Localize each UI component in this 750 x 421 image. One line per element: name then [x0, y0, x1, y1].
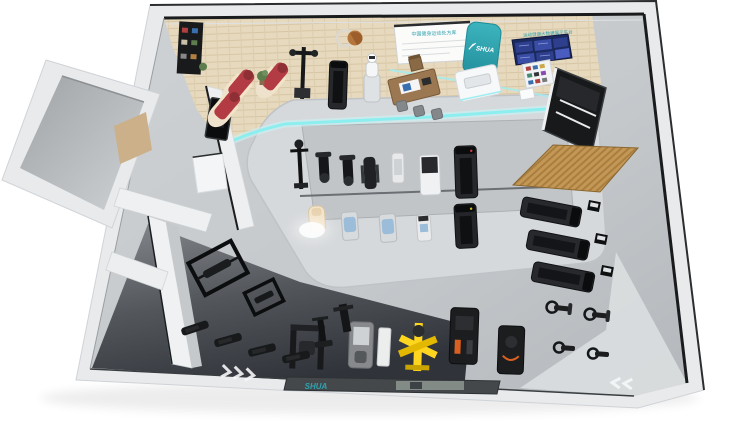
stool: [413, 105, 425, 117]
panel-board: [377, 328, 391, 367]
press-machine: [419, 155, 440, 196]
mat-image: [396, 381, 464, 390]
incline-bench: [392, 153, 405, 183]
strength-machine: [449, 308, 479, 365]
mat-brand-text: SHUA: [305, 382, 328, 391]
strength-machine: [497, 326, 525, 375]
floorplan-svg: 中国健身运动处方库 SHUA 运动健康大数据展示平台: [0, 0, 750, 421]
stool: [396, 100, 408, 112]
physio-chair: [379, 213, 397, 242]
floorplan-render: 中国健身运动处方库 SHUA 运动健康大数据展示平台: [0, 0, 750, 421]
stool: [431, 108, 443, 120]
strength-machine: [348, 322, 374, 369]
pillar-block: [193, 153, 228, 193]
light-fixture: [292, 218, 332, 242]
physio-chair: [341, 211, 359, 240]
whiteboard: 中国健身运动处方库: [394, 22, 474, 64]
product-display-stand: [522, 60, 554, 88]
physio-machine: [416, 215, 432, 242]
treadmill: [454, 203, 478, 248]
brochure-box: [519, 88, 535, 100]
treadmill: [328, 61, 348, 110]
treadmill: [454, 146, 478, 199]
